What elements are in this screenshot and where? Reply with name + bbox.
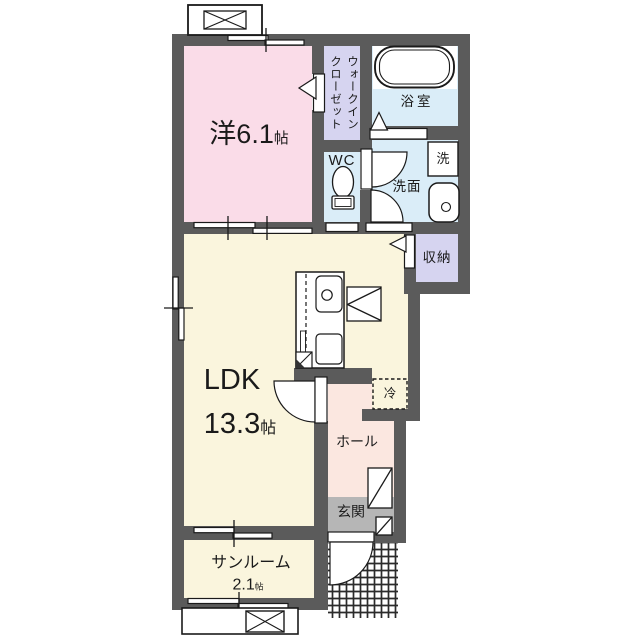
room-label-bath: 浴室 bbox=[401, 95, 434, 109]
floorplan-drawing bbox=[0, 0, 640, 640]
entrance-door-leaf bbox=[328, 532, 374, 542]
label-fridge: 冷 bbox=[384, 387, 397, 400]
room-label-sunroom-size: 2.1帖 bbox=[232, 578, 263, 595]
room-label-hall: ホール bbox=[336, 435, 378, 450]
range-hood-icon bbox=[347, 287, 381, 321]
exterior-unit-top-icon bbox=[188, 5, 262, 35]
room-label-ldk: LDK bbox=[204, 365, 260, 395]
wall-opening bbox=[326, 223, 358, 232]
vanity-sink-icon bbox=[429, 183, 459, 222]
sliding-door bbox=[253, 228, 312, 233]
label-washer: 洗 bbox=[436, 152, 449, 166]
window bbox=[265, 40, 304, 45]
window bbox=[173, 277, 178, 309]
room-label-ldk-size: 13.3帖 bbox=[204, 409, 276, 439]
ldk-door-leaf bbox=[315, 377, 327, 423]
wc-door-leaf bbox=[361, 149, 372, 189]
sliding-door bbox=[194, 223, 255, 228]
window bbox=[188, 599, 239, 604]
window bbox=[228, 36, 268, 41]
kitchen-unit-icon bbox=[296, 272, 344, 368]
room-label-sunroom: サンルーム bbox=[211, 556, 291, 573]
washroom-door-leaf bbox=[366, 223, 412, 232]
sliding-door bbox=[194, 528, 234, 533]
room-label-washroom: 洗面 bbox=[393, 180, 422, 194]
room-label-entrance: 玄関 bbox=[337, 505, 365, 520]
toilet-icon bbox=[332, 167, 354, 210]
room-label-western: 洋6.1帖 bbox=[209, 120, 288, 148]
ldk-area bbox=[184, 234, 404, 294]
window bbox=[179, 308, 184, 340]
sliding-door bbox=[233, 533, 272, 538]
floorplan-canvas: 洋6.1帖 ウォークインクローゼット WC 浴室 洗 洗面 収納 LDK 13.… bbox=[0, 0, 640, 640]
room-label-wc: WC bbox=[329, 153, 356, 169]
exterior-unit-bottom-icon bbox=[182, 608, 298, 634]
bathtub-icon bbox=[373, 46, 457, 89]
room-label-walk-in-closet: ウォークインクローゼット bbox=[326, 56, 360, 131]
room-label-storage: 収納 bbox=[423, 251, 452, 265]
